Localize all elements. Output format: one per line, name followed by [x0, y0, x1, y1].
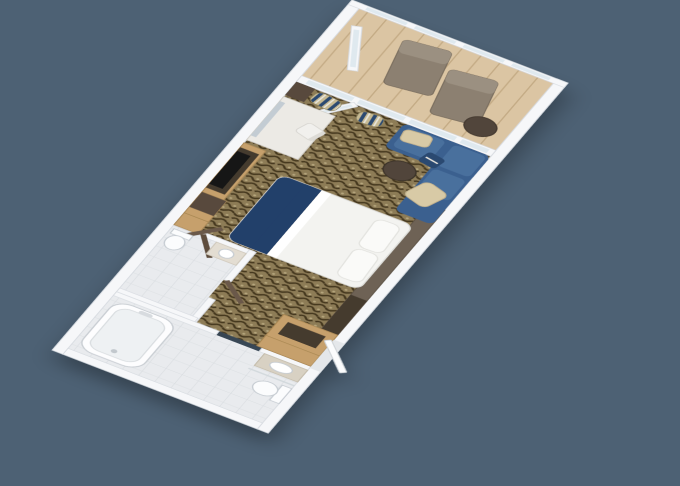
- screenshot-root: Isometric 3D floor plan of a balcony sta…: [0, 0, 680, 486]
- floorplan-canvas: [0, 0, 680, 486]
